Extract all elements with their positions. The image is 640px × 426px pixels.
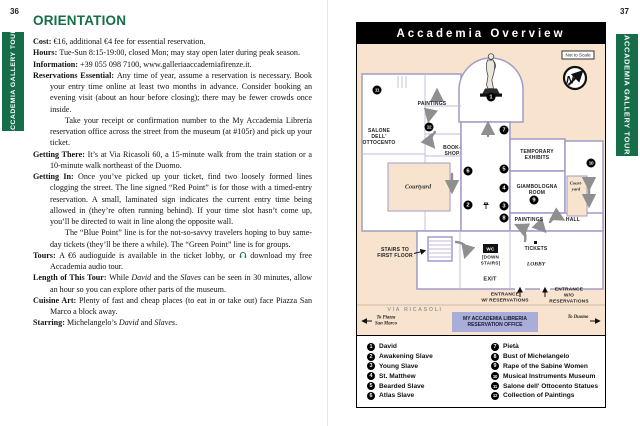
map-label-tickets: TICKETS [525,246,548,252]
map-label-paintings-upper: PAINTINGS [418,101,447,107]
map-label-stairs: STAIRS TO FIRST FLOOR [377,247,413,259]
map-marker-11: 11 [373,86,382,95]
map-label-temporary-exhibits: TEMPORARY EXHIBITS [520,149,554,161]
legend-marker: 10 [491,372,499,380]
legend-item: 1David [367,342,491,352]
orientation-entry-cost: Cost: €16, additional €4 fee for essenti… [33,36,312,47]
legend-item: 3Young Slave [367,362,491,372]
map-title: Accademia Overview [357,23,605,44]
map-marker-2: 2 [464,201,473,210]
page-gutter [327,0,328,426]
scale-note: Not to Scale [561,51,594,60]
legend-marker: 2 [367,353,375,361]
orientation-entry-reservations-cont: Take your receipt or confirmation number… [33,115,312,149]
legend-item: 5Bearded Slave [367,381,491,391]
map-marker-7: 7 [500,126,509,135]
map-label-down-stairs: [DOWN STAIRS] [481,255,500,266]
map-label-wc: WC [486,246,494,252]
sidebar-tab-left: ACCADEMIA GALLERY TOUR [2,32,24,131]
map-marker-1: 1 [487,93,496,102]
map-marker-12: 12 [425,123,434,132]
orientation-entry-cuisine: Cuisine Art: Plenty of fast and cheap pl… [33,295,312,318]
orientation-entry-hours: Hours: Tue-Sun 8:15-19:00, closed Mon; m… [33,47,312,58]
reservation-office-box: MY ACCADEMIA LIBRERIA RESERVATION OFFICE [452,312,538,332]
map-label-entrance-without-reservations: ENTRANCE W/O RESERVATIONS [549,287,588,304]
legend-marker: 4 [367,372,375,380]
orientation-entry-tours: Tours: A €6 audioguide is available in t… [33,250,312,273]
legend-item: 10Musical Instruments Museum [491,371,605,381]
map-label-entrance-with-reservations: ENTRANCE W/ RESERVATIONS [481,292,528,304]
legend-item: 8Bust of Michelangelo [491,352,605,362]
orientation-entry-starring: Starring: Michelangelo’s David and Slave… [33,317,312,328]
map-marker-5: 5 [500,165,509,174]
orientation-entry-reservations: Reservations Essential: Any time of year… [33,70,312,115]
map-label-courtyard: Courtyard [405,183,431,190]
legend-item: 2Awakening Slave [367,352,491,362]
legend-marker: 9 [491,362,499,370]
map-marker-4: 4 [500,184,509,193]
accademia-map: Accademia Overview [356,22,606,408]
svg-text:N: N [566,75,575,87]
legend-item: 4St. Matthew [367,371,491,381]
legend-column-1: 1David 2Awakening Slave 3Young Slave 4St… [367,342,491,401]
legend-item: 9Rape of the Sabine Women [491,362,605,372]
sidebar-tab-label: ACCADEMIA GALLERY TOUR [10,28,17,135]
legend-marker: 5 [367,382,375,390]
orientation-entry-getting-in-cont: The “Blue Point” line is for the not-so-… [33,227,312,250]
orientation-entry-getting-in: Getting In: Once you’ve picked up your t… [33,171,312,227]
map-label-bookshop: BOOK- SHOP [443,145,461,157]
sidebar-tab-right: ACCADEMIA GALLERY TOUR [616,34,638,156]
map-label-hall: HALL [566,217,580,223]
orientation-entry-length: Length of This Tour: While David and the… [33,272,312,295]
map-marker-6: 6 [464,167,473,176]
map-label-salone: SALONE DELL' OTTOCENTO [362,128,395,146]
page-number-left: 36 [10,7,19,16]
legend-marker: 7 [491,343,499,351]
legend-item: 6Atlas Slave [367,391,491,401]
orientation-entry-information: Information: +39 055 098 7100, www.galle… [33,59,312,70]
map-marker-3: 3 [500,202,509,211]
page-title: ORIENTATION [33,13,126,28]
map-label-lobby: LOBBY [527,262,545,269]
map-marker-8: 8 [500,214,509,223]
sidebar-tab-label: ACCADEMIA GALLERY TOUR [623,35,632,155]
legend-marker: 1 [367,343,375,351]
ticket-desk-mark [534,241,537,244]
map-legend: 1David 2Awakening Slave 3Young Slave 4St… [357,335,605,401]
map-body: N Not to [357,44,605,335]
legend-marker: 12 [491,392,499,400]
headphones-icon [239,251,247,259]
map-label-courtyard-right: Court- yard [570,181,583,192]
legend-marker: 8 [491,353,499,361]
map-label-to-duomo: To Duomo [568,315,589,321]
legend-item: 7Pietà [491,342,605,352]
legend-marker: 6 [367,392,375,400]
legend-item: 12Collection of Paintings [491,391,605,401]
north-arrow-icon: N [564,67,586,89]
map-label-exit: EXIT [483,277,496,284]
legend-column-2: 7Pietà 8Bust of Michelangelo 9Rape of th… [491,342,605,401]
map-marker-10: 10 [587,159,596,168]
orientation-entry-getting-there: Getting There: It’s at Via Ricasoli 60, … [33,149,312,172]
map-label-giambologna-room: GIAMBOLOGNA ROOM [517,184,558,196]
legend-marker: 3 [367,362,375,370]
page-number-right: 37 [620,7,629,16]
map-marker-9: 9 [530,196,539,205]
map-label-to-piazza-san-marco: To Piazza San Marco [375,315,397,327]
map-label-paintings-lower: PAINTINGS [515,217,544,223]
legend-marker: 11 [491,382,499,390]
map-label-via-ricasoli: VIA RICASOLI [387,307,442,313]
orientation-text: Cost: €16, additional €4 fee for essenti… [33,36,312,329]
legend-item: 11Salone dell' Ottocento Statues [491,381,605,391]
